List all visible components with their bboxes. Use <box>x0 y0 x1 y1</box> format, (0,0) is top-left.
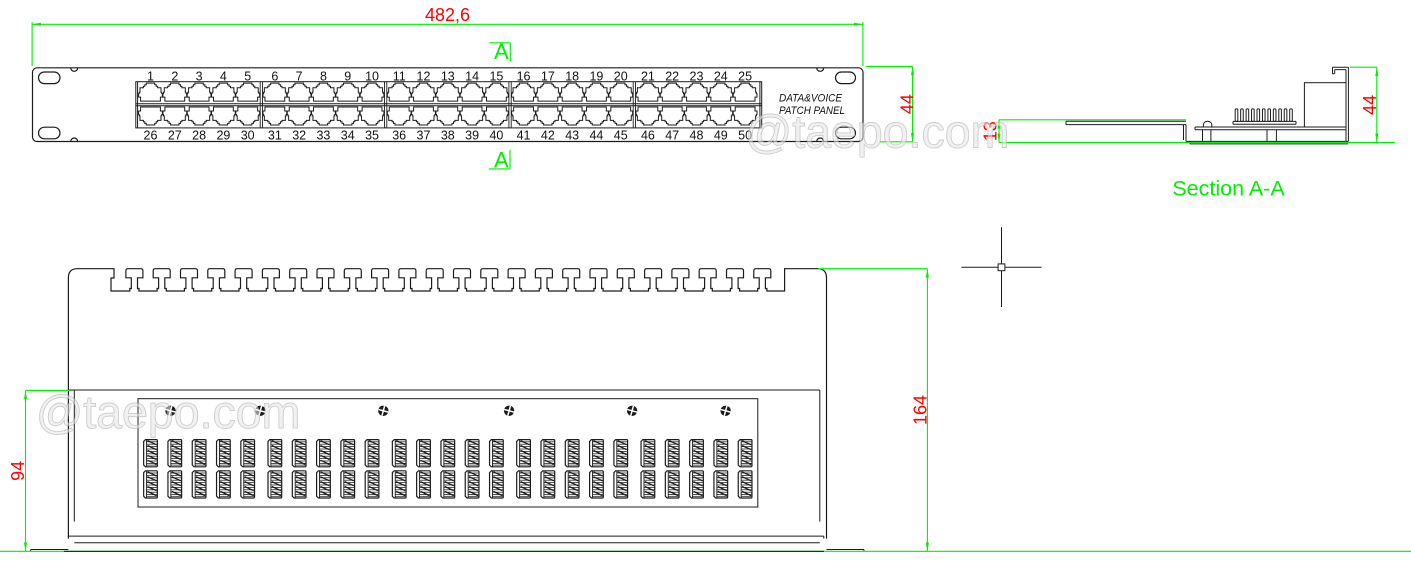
svg-text:16: 16 <box>517 69 531 83</box>
svg-text:43: 43 <box>565 129 579 143</box>
svg-text:28: 28 <box>192 129 206 143</box>
svg-text:12: 12 <box>417 69 431 83</box>
svg-text:Section A-A: Section A-A <box>1172 177 1285 201</box>
svg-text:24: 24 <box>714 69 728 83</box>
svg-text:94: 94 <box>8 461 28 481</box>
svg-text:46: 46 <box>641 129 655 143</box>
svg-text:9: 9 <box>344 69 351 83</box>
svg-text:37: 37 <box>417 129 431 143</box>
svg-text:30: 30 <box>241 129 255 143</box>
svg-text:35: 35 <box>365 129 379 143</box>
svg-text:27: 27 <box>168 129 182 143</box>
svg-text:20: 20 <box>614 69 628 83</box>
svg-text:8: 8 <box>320 69 327 83</box>
svg-text:23: 23 <box>690 69 704 83</box>
svg-text:33: 33 <box>316 129 330 143</box>
svg-text:@taepo.com: @taepo.com <box>36 386 300 438</box>
svg-text:17: 17 <box>541 69 555 83</box>
svg-text:32: 32 <box>292 129 306 143</box>
svg-text:15: 15 <box>489 69 503 83</box>
svg-text:10: 10 <box>365 69 379 83</box>
svg-text:45: 45 <box>614 129 628 143</box>
svg-text:34: 34 <box>341 129 355 143</box>
svg-text:26: 26 <box>144 129 158 143</box>
svg-text:41: 41 <box>517 129 531 143</box>
svg-text:44: 44 <box>589 129 603 143</box>
svg-text:49: 49 <box>714 129 728 143</box>
svg-text:1: 1 <box>147 69 154 83</box>
svg-text:13: 13 <box>441 69 455 83</box>
svg-text:482,6: 482,6 <box>425 5 470 25</box>
svg-text:6: 6 <box>271 69 278 83</box>
svg-text:29: 29 <box>216 129 230 143</box>
svg-text:18: 18 <box>565 69 579 83</box>
svg-text:47: 47 <box>665 129 679 143</box>
svg-text:42: 42 <box>541 129 555 143</box>
svg-text:19: 19 <box>589 69 603 83</box>
svg-text:21: 21 <box>641 69 655 83</box>
svg-text:2: 2 <box>171 69 178 83</box>
svg-text:5: 5 <box>244 69 251 83</box>
svg-text:A: A <box>494 39 509 64</box>
svg-text:DATA&VOICE: DATA&VOICE <box>779 93 843 105</box>
svg-text:22: 22 <box>665 69 679 83</box>
svg-text:38: 38 <box>441 129 455 143</box>
svg-text:40: 40 <box>489 129 503 143</box>
svg-text:3: 3 <box>196 69 203 83</box>
svg-text:@taepo.com: @taepo.com <box>745 106 1009 158</box>
svg-text:4: 4 <box>220 69 227 83</box>
svg-text:31: 31 <box>268 129 282 143</box>
svg-text:39: 39 <box>465 129 479 143</box>
svg-text:A: A <box>494 148 509 173</box>
svg-text:44: 44 <box>1360 95 1380 115</box>
svg-text:14: 14 <box>465 69 479 83</box>
svg-text:25: 25 <box>738 69 752 83</box>
svg-text:36: 36 <box>392 129 406 143</box>
svg-text:11: 11 <box>393 69 406 83</box>
svg-text:164: 164 <box>910 395 930 425</box>
svg-text:7: 7 <box>296 69 303 83</box>
svg-text:48: 48 <box>690 129 704 143</box>
